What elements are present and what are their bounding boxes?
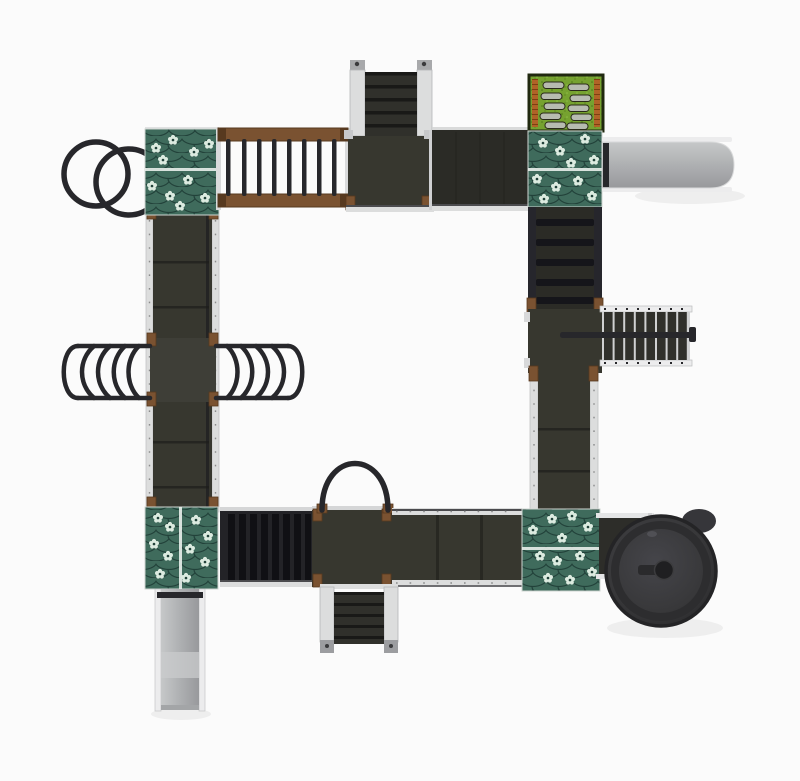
walkway-bottom-platform <box>312 506 392 587</box>
roof-top-right <box>528 131 602 207</box>
activity-panel <box>529 75 603 131</box>
brick-strip <box>594 79 600 127</box>
stair-handrail <box>560 332 694 338</box>
roof-bottom-left <box>145 507 218 589</box>
walkway-bottom-slats <box>220 507 312 587</box>
platform-top <box>344 130 434 212</box>
walkway-right <box>529 366 598 512</box>
slide-entry-bar <box>603 143 609 187</box>
stair-steps <box>365 72 417 136</box>
stair-steps <box>334 592 384 644</box>
roof-top-left <box>145 127 219 215</box>
spiral-center-pole <box>655 561 674 580</box>
slide-straight-bottom <box>151 589 211 720</box>
slide-entry-bar <box>157 592 203 598</box>
stairs-bottom <box>320 584 398 653</box>
walkway-top <box>429 127 528 211</box>
playground-canvas <box>0 0 800 781</box>
platform-right <box>524 309 602 373</box>
ramp-right <box>527 207 603 314</box>
roof-bottom-right <box>522 509 600 591</box>
brick-strip <box>532 79 538 127</box>
playground-render: Top-down render of a modular playground:… <box>0 0 800 781</box>
walkway-bottom-panels <box>392 508 522 587</box>
